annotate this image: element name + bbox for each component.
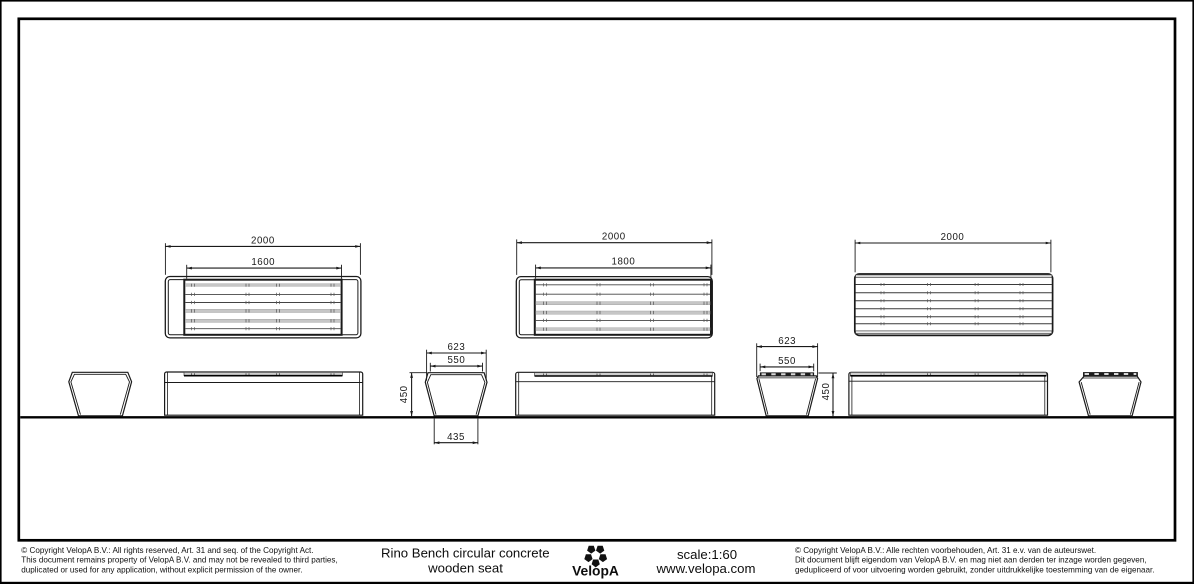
svg-text:2000: 2000 <box>602 232 626 243</box>
svg-text:Rino Bench circular concrete: Rino Bench circular concrete <box>381 546 550 561</box>
svg-text:duplicated or used for any app: duplicated or used for any application, … <box>21 566 302 575</box>
svg-text:www.velopa.com: www.velopa.com <box>656 561 756 576</box>
svg-text:435: 435 <box>447 432 465 443</box>
svg-text:gedupliceerd of voor uitvoerin: gedupliceerd of voor uitvoering worden g… <box>795 566 1154 575</box>
svg-text:2000: 2000 <box>251 235 275 246</box>
svg-text:1600: 1600 <box>251 257 275 268</box>
svg-text:550: 550 <box>778 356 796 367</box>
svg-text:1800: 1800 <box>612 257 636 268</box>
svg-text:2000: 2000 <box>941 232 965 243</box>
svg-text:623: 623 <box>447 342 465 353</box>
svg-text:wooden seat: wooden seat <box>427 561 503 576</box>
svg-text:450: 450 <box>821 383 832 401</box>
svg-text:Dit document blijft eigendom v: Dit document blijft eigendom van VelopA … <box>795 556 1147 565</box>
svg-text:550: 550 <box>447 355 465 366</box>
svg-text:450: 450 <box>399 385 410 403</box>
svg-text:This document remains property: This document remains property of VelopA… <box>21 556 337 565</box>
svg-text:623: 623 <box>778 336 796 347</box>
svg-text:scale:1:60: scale:1:60 <box>677 547 737 562</box>
svg-text:© Copyright VelopA B.V.: All: © Copyright VelopA B.V.: All rights rese… <box>21 546 313 555</box>
svg-text:© Copyright VelopA B.V.: Alle: © Copyright VelopA B.V.: Alle rechten vo… <box>795 546 1096 555</box>
svg-text:VelopA: VelopA <box>572 564 619 579</box>
